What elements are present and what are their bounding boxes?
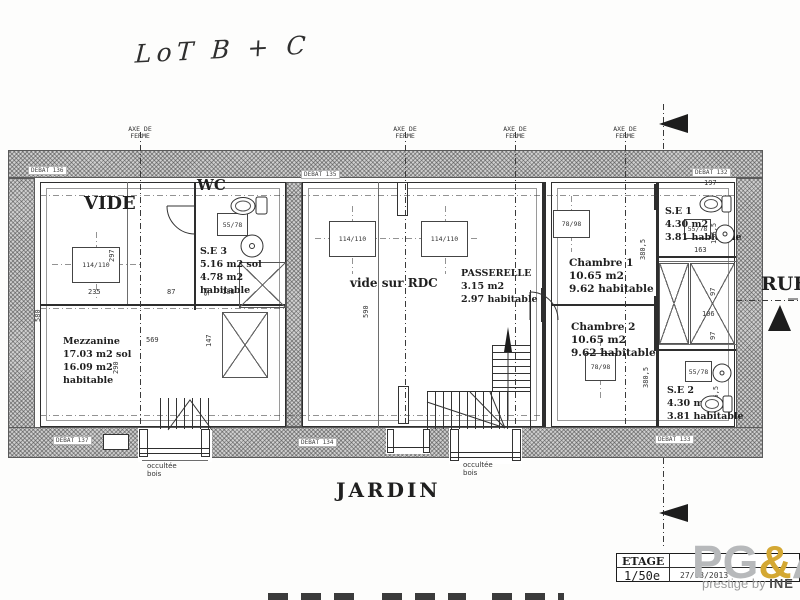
closet-top-line xyxy=(659,261,736,262)
dimension: 380,5 xyxy=(642,367,650,388)
partition-se2 xyxy=(659,349,736,351)
dimension: 235 xyxy=(88,288,101,296)
dimension: 569 xyxy=(146,336,159,344)
titleblock-scale: 1/50e xyxy=(624,569,660,583)
structure-line xyxy=(378,182,379,427)
dimension: 380,5 xyxy=(639,239,647,260)
room-area: 3.81 habitable xyxy=(665,232,742,243)
axis-label-line2: FERME xyxy=(395,132,415,140)
window-note-left: occultée bois xyxy=(147,462,207,478)
axis-label: AXE DE FERME xyxy=(497,126,533,140)
room-area: 17.03 m2 sol xyxy=(63,349,131,360)
low-height-zone xyxy=(222,312,268,378)
room-block-passerelle: PASSERELLE 3.15 m2 2.97 habitable xyxy=(461,267,538,306)
wall-tag: DEBAT 135 xyxy=(301,170,340,179)
room-area: 4.30 m2 xyxy=(665,219,708,230)
cutoff-text-fragment xyxy=(492,593,564,600)
wall-left xyxy=(8,178,35,458)
room-area: 16.09 m2 xyxy=(63,362,113,373)
dimension: 196,5 xyxy=(712,386,720,407)
dimension: 163 xyxy=(694,246,707,254)
room-block-mezzanine: Mezzanine 17.03 m2 sol 16.09 m2 habitabl… xyxy=(63,335,131,387)
window-sill-line xyxy=(450,457,521,458)
wall-tag: DEBAT 133 xyxy=(655,435,694,444)
axis-line xyxy=(140,132,141,427)
room-name: Chambre 1 xyxy=(569,257,633,269)
room-area: 4.78 m2 xyxy=(200,272,243,283)
window-sill-line xyxy=(387,447,430,448)
axis-label: AXE DE FERME xyxy=(387,126,423,140)
dimension: 90 xyxy=(203,288,211,296)
room-name: PASSERELLE xyxy=(461,268,531,279)
window-note-center: occultée bois xyxy=(463,461,523,477)
titleblock-stage: ETAGE xyxy=(622,555,664,568)
partition-wc xyxy=(194,182,196,310)
wall-tag: DEBAT 132 xyxy=(692,168,731,177)
window-note-line2: bois xyxy=(463,469,477,477)
window-sill-line xyxy=(139,448,210,449)
skylight-tag: 114/110 xyxy=(421,221,468,257)
partition-chambres xyxy=(551,304,658,306)
stair-upper-run xyxy=(492,345,531,392)
structural-post xyxy=(397,182,408,216)
room-label-vide: VIDE xyxy=(84,193,136,214)
window-jamb xyxy=(387,429,394,453)
room-area: habitable xyxy=(63,375,113,386)
room-area: 5.16 m2 sol xyxy=(200,259,262,270)
wall-tag: DEBAT 134 xyxy=(298,438,337,447)
skylight-tag: 114/110 xyxy=(329,221,376,257)
skylight-tag: 55/78 xyxy=(217,213,248,236)
room-area: 9.62 habitable xyxy=(569,283,654,295)
cutoff-text-fragment xyxy=(382,593,466,600)
rue-axis-line xyxy=(736,300,798,301)
window-jamb xyxy=(423,429,430,453)
dimension: 147 xyxy=(205,334,213,347)
stair-rail xyxy=(530,290,531,430)
centerline xyxy=(40,308,286,309)
rue-label: RUE xyxy=(761,273,800,295)
dimension: 196,5 xyxy=(710,223,718,244)
window-note-line1: occultée xyxy=(147,462,177,470)
centerline xyxy=(40,415,543,416)
axis-label-line2: FERME xyxy=(130,132,150,140)
dimension: 290 xyxy=(112,361,120,374)
room-block-chambre2: Chambre 2 10.65 m2 9.62 habitable xyxy=(571,321,656,360)
wall-post xyxy=(654,184,659,210)
axis-label-line2: FERME xyxy=(615,132,635,140)
window-note-line1: occultée xyxy=(463,461,493,469)
titleblock-col-divider xyxy=(669,553,670,582)
rue-arrow xyxy=(768,305,791,331)
floorplan-sheet: LoT B + C occultée bois occultée bois xyxy=(0,0,800,600)
room-area: 10.65 m2 xyxy=(571,334,626,346)
site-axis-line xyxy=(663,458,664,546)
room-name: S.E 1 xyxy=(665,206,692,217)
room-block-chambre1: Chambre 1 10.65 m2 9.62 habitable xyxy=(569,257,654,296)
handwritten-lot-label: LoT B + C xyxy=(134,30,311,68)
tagline-light: prestige by xyxy=(702,576,766,591)
room-area: 10.65 m2 xyxy=(569,270,624,282)
site-axis-line xyxy=(663,104,664,152)
axis-label: AXE DE FERME xyxy=(122,126,158,140)
structural-post xyxy=(398,386,409,424)
room-label-wc: WC xyxy=(197,176,226,194)
partition-se1 xyxy=(659,256,736,258)
skylight-tag: 55/78 xyxy=(685,361,712,382)
closet-cell xyxy=(659,263,689,344)
dimension: 106 xyxy=(702,310,715,318)
room-area: 3.81 habitable xyxy=(667,411,744,422)
room-name: S.E 3 xyxy=(200,246,227,257)
centerline xyxy=(40,195,735,196)
window-note-line2: bois xyxy=(147,470,161,478)
small-window xyxy=(103,434,129,450)
stair-lower-run xyxy=(427,392,511,429)
room-block-se1: S.E 1 4.30 m2 3.81 habitable xyxy=(665,205,742,244)
room-name: Mezzanine xyxy=(63,336,120,347)
axis-label: AXE DE FERME xyxy=(607,126,643,140)
skylight-tag: 78/98 xyxy=(553,210,590,238)
window-bracket xyxy=(142,460,208,461)
dimension: 180 xyxy=(222,288,235,296)
room-name: Chambre 2 xyxy=(571,321,635,333)
wall-post xyxy=(541,288,546,322)
axis-label-line2: FERME xyxy=(505,132,525,140)
window-sill-line xyxy=(139,453,210,454)
wall-tag: DEBAT 137 xyxy=(53,436,92,445)
dimension: 580 xyxy=(34,309,42,322)
room-area: 9.62 habitable xyxy=(571,347,656,359)
room-name: S.E 2 xyxy=(667,385,694,396)
logo-tagline: prestige by INE xyxy=(702,576,794,591)
dimension: 97 xyxy=(709,332,717,340)
dimension: 97 xyxy=(709,288,717,296)
dimension: 297 xyxy=(108,249,116,262)
dimension: 87 xyxy=(167,288,175,296)
dimension: 197 xyxy=(704,179,717,187)
mezzanine-stair xyxy=(160,398,216,429)
tagline-brand: INE xyxy=(769,576,794,591)
window-sill-line xyxy=(450,452,521,453)
room-block-se2: S.E 2 4.30 m2 3.81 habitable xyxy=(667,384,744,423)
wall-tag: DEBAT 136 xyxy=(28,166,67,175)
jardin-label: JARDIN xyxy=(336,478,441,502)
micro-text xyxy=(788,298,798,300)
room-area: 2.97 habitable xyxy=(461,294,538,305)
cutoff-text-fragment xyxy=(268,593,358,600)
dimension: 590 xyxy=(362,305,370,318)
wall-top xyxy=(8,150,763,178)
wall-party xyxy=(286,182,302,427)
room-area: 4.30 m2 xyxy=(667,398,710,409)
room-label-vide-rdc: vide sur RDC xyxy=(350,276,438,290)
room-area: 3.15 m2 xyxy=(461,281,504,292)
closet-bottom-line xyxy=(659,344,736,345)
